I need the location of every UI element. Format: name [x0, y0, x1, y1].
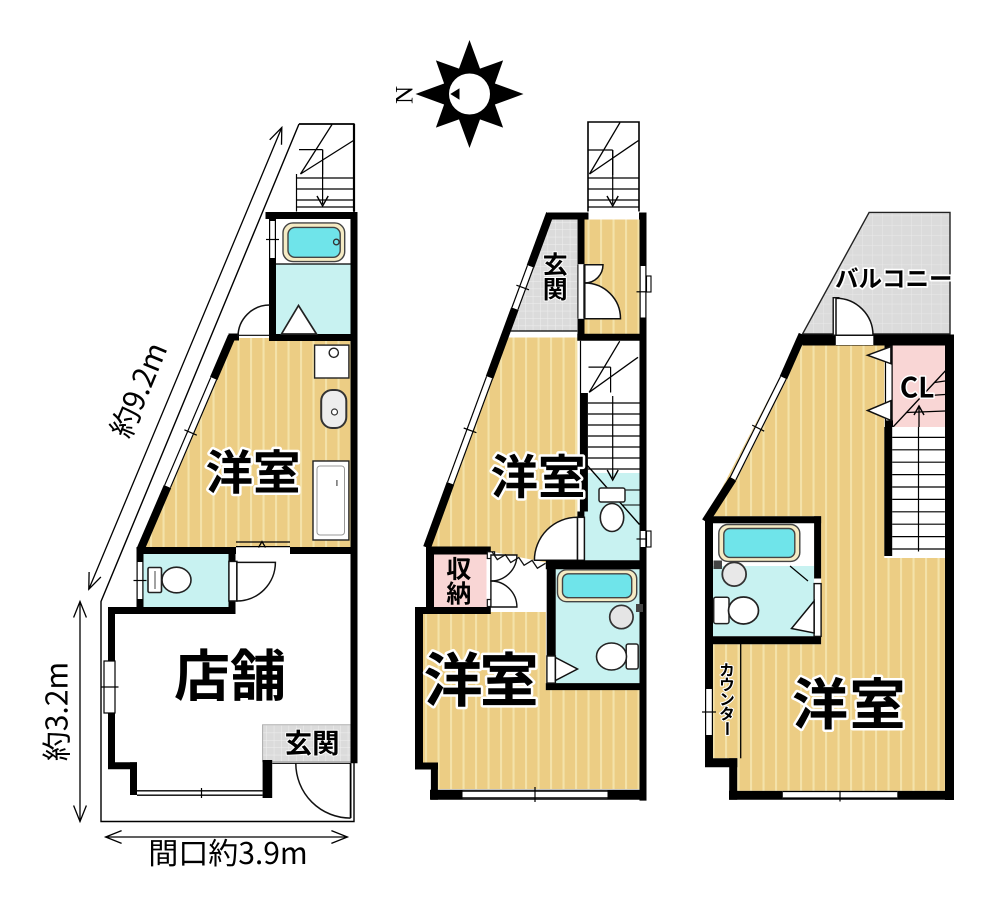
svg-text:N: N — [392, 86, 419, 104]
